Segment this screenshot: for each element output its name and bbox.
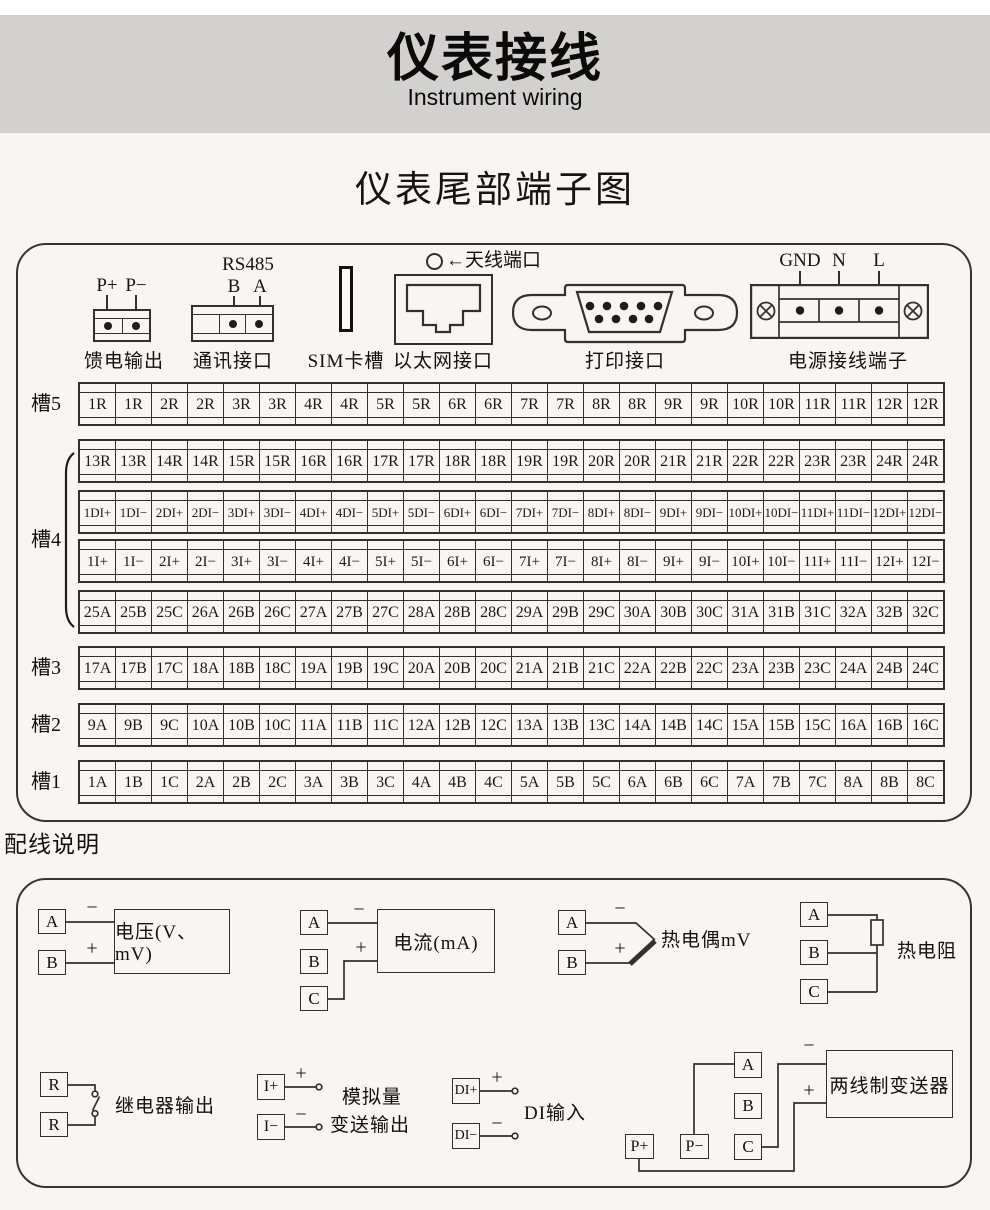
terminal-cell-label: 5I− — [411, 554, 432, 571]
terminal-cell-label: 6C — [700, 774, 719, 792]
terminal-cell-label: 1R — [124, 396, 143, 414]
terminal-cell: 6B — [655, 762, 691, 802]
terminal-cell: 15R — [223, 441, 259, 481]
terminal-cell-label: 23B — [768, 660, 795, 678]
terminal-cell-label: 12B — [444, 717, 471, 735]
terminal-cell-label: 10DI− — [764, 505, 798, 521]
terminal-cell: 7I+ — [511, 541, 547, 581]
terminal-cell: 1C — [151, 762, 187, 802]
thermocouple-plus-sign: + — [614, 938, 625, 961]
top-white-strip — [0, 0, 990, 15]
terminal-cell-label: 10R — [768, 396, 795, 414]
terminal-cell: 25B — [115, 592, 151, 632]
terminal-cell: 11B — [331, 705, 367, 745]
terminal-cell: 8B — [871, 762, 907, 802]
terminal-cell: 16B — [871, 705, 907, 745]
terminal-cell: 31A — [727, 592, 763, 632]
terminal-cell: 22A — [619, 648, 655, 688]
terminal-cell: 8DI+ — [583, 492, 619, 532]
terminal-cell: 10DI− — [763, 492, 799, 532]
terminal-cell-label: 3DI− — [264, 505, 292, 521]
terminal-cell: 5DI− — [403, 492, 439, 532]
terminal-cell-label: 24B — [876, 660, 903, 678]
terminal-cell-label: 20A — [408, 660, 436, 678]
terminal-cell-label: 6A — [628, 774, 648, 792]
terminal-cell: 1I+ — [80, 541, 115, 581]
terminal-cell: 29B — [547, 592, 583, 632]
terminal-cell-label: 10C — [264, 717, 291, 735]
rj45-jack-icon — [396, 276, 491, 343]
terminal-cell: 17R — [367, 441, 403, 481]
terminal-cell-label: 6DI+ — [444, 505, 472, 521]
terminal-cell-label: 1DI− — [120, 505, 148, 521]
terminal-cell-label: 10A — [192, 717, 220, 735]
di-terminal-plus: DI+ — [452, 1078, 480, 1104]
power-terminal-block — [750, 284, 929, 339]
terminal-cell: 11DI+ — [799, 492, 835, 532]
page-title: 仪表接线 — [0, 15, 990, 89]
terminal-cell: 2I+ — [151, 541, 187, 581]
terminal-cell: 9C — [151, 705, 187, 745]
feed-wire — [106, 295, 108, 310]
terminal-cell-label: 5DI− — [408, 505, 436, 521]
terminal-cell: 26C — [259, 592, 295, 632]
terminal-cell-label: 6R — [448, 396, 467, 414]
feed-terminal-block — [93, 309, 151, 342]
terminal-cell-label: 21B — [552, 660, 579, 678]
terminal-cell-label: 4I− — [339, 554, 360, 571]
terminal-cell: 16A — [835, 705, 871, 745]
terminal-cell: 1DI− — [115, 492, 151, 532]
terminal-cell: 26A — [187, 592, 223, 632]
terminal-cell: 3A — [295, 762, 331, 802]
screw-icon — [758, 303, 922, 320]
terminal-cell-label: 21C — [588, 660, 615, 678]
terminal-cell-label: 15C — [804, 717, 831, 735]
terminal-cell-label: 4B — [448, 774, 467, 792]
terminal-cell: 3B — [331, 762, 367, 802]
terminal-cell: 12DI− — [907, 492, 943, 532]
terminal-cell-label: 26A — [192, 604, 220, 622]
terminal-cell-label: 16B — [876, 717, 903, 735]
terminal-cell-label: 28B — [444, 604, 471, 622]
thermocouple-minus-sign: − — [614, 898, 625, 921]
terminal-cell-label: 8B — [880, 774, 899, 792]
terminal-cell: 32C — [907, 592, 943, 632]
terminal-cell-label: 2B — [232, 774, 251, 792]
terminal-cell: 11R — [835, 384, 871, 424]
terminal-cell: 6DI− — [475, 492, 511, 532]
terminal-cell-label: 27C — [372, 604, 399, 622]
voltage-plus-sign: + — [86, 938, 97, 961]
power-wire — [799, 271, 801, 284]
terminal-cell: 20R — [619, 441, 655, 481]
terminal-cell: 12R — [871, 384, 907, 424]
terminal-cell: 25A — [80, 592, 115, 632]
terminal-cell: 1B — [115, 762, 151, 802]
terminal-cell-label: 12DI− — [908, 505, 942, 521]
terminal-dot — [229, 320, 237, 328]
terminal-cell: 24R — [871, 441, 907, 481]
terminal-cell-label: 18C — [264, 660, 291, 678]
terminal-cell: 10I− — [763, 541, 799, 581]
wiring-section-title: 配线说明 — [4, 832, 100, 858]
terminal-cell: 28B — [439, 592, 475, 632]
terminal-cell-label: 1DI+ — [84, 505, 112, 521]
rtd-terminal-c: C — [800, 979, 828, 1004]
terminal-cell: 15R — [259, 441, 295, 481]
terminal-cell-label: 12C — [480, 717, 507, 735]
terminal-cell-label: 5R — [412, 396, 431, 414]
terminal-cell-label: 1R — [88, 396, 107, 414]
terminal-cell-label: 4A — [412, 774, 432, 792]
terminal-cell: 16R — [295, 441, 331, 481]
terminal-cell: 1I− — [115, 541, 151, 581]
feed-label: 馈电输出 — [84, 350, 164, 373]
analog-terminal-iplus: I+ — [257, 1074, 285, 1100]
terminal-cell: 9I− — [691, 541, 727, 581]
terminal-cell: 5B — [547, 762, 583, 802]
terminal-cell: 27B — [331, 592, 367, 632]
terminal-cell: 30A — [619, 592, 655, 632]
terminal-cell-label: 3DI+ — [228, 505, 256, 521]
terminal-cell-label: 23C — [804, 660, 831, 678]
terminal-cell: 6A — [619, 762, 655, 802]
terminal-cell-label: 19B — [336, 660, 363, 678]
terminal-cell: 21A — [511, 648, 547, 688]
terminal-cell-label: 9DI− — [696, 505, 724, 521]
current-terminal-c: C — [300, 986, 328, 1011]
terminal-cell-label: 7R — [556, 396, 575, 414]
terminal-cell-label: 23A — [732, 660, 760, 678]
terminal-cell-label: 4DI− — [336, 505, 364, 521]
page-subtitle: Instrument wiring — [0, 85, 990, 109]
terminal-cell: 21C — [583, 648, 619, 688]
terminal-cell: 30C — [691, 592, 727, 632]
transmitter-pin-pminus: P− — [680, 1134, 709, 1159]
terminal-cell: 17B — [115, 648, 151, 688]
sim-slot-icon — [339, 266, 353, 332]
terminal-cell: 18C — [259, 648, 295, 688]
current-device-box: 电流(mA) — [377, 909, 495, 973]
analog-terminal-iminus: I− — [257, 1114, 285, 1140]
terminal-cell-label: 32B — [876, 604, 903, 622]
terminal-cell-label: 3R — [268, 396, 287, 414]
terminal-cell-label: 11DI+ — [801, 505, 835, 521]
terminal-cell: 3R — [259, 384, 295, 424]
terminal-cell-label: 10I− — [767, 554, 795, 571]
terminal-cell-label: 21R — [660, 453, 687, 471]
terminal-cell: 18B — [223, 648, 259, 688]
terminal-cell-label: 19R — [552, 453, 579, 471]
slot1-label: 槽1 — [24, 770, 68, 794]
terminal-dot — [132, 322, 140, 330]
terminal-cell: 3DI− — [259, 492, 295, 532]
terminal-cell: 8R — [619, 384, 655, 424]
terminal-cell-label: 20R — [588, 453, 615, 471]
terminal-cell: 23R — [835, 441, 871, 481]
current-terminal-b: B — [300, 949, 328, 974]
terminal-cell: 4C — [475, 762, 511, 802]
terminal-cell: 6DI+ — [439, 492, 475, 532]
terminal-cell: 9I+ — [655, 541, 691, 581]
di-terminal-minus: DI− — [452, 1123, 480, 1149]
terminal-cell: 14R — [151, 441, 187, 481]
terminal-cell: 27C — [367, 592, 403, 632]
terminal-cell-label: 25A — [84, 604, 112, 622]
terminal-cell: 4DI− — [331, 492, 367, 532]
power-pin-n-label: N — [832, 250, 846, 272]
terminal-cell-label: 24A — [840, 660, 868, 678]
terminal-cell-label: 26B — [228, 604, 255, 622]
terminal-cell-label: 21R — [696, 453, 723, 471]
terminal-cell-label: 5DI+ — [372, 505, 400, 521]
current-terminal-a: A — [300, 910, 328, 935]
terminal-cell-label: 9A — [88, 717, 108, 735]
analog-label-line1: 模拟量 — [342, 1086, 402, 1109]
terminal-strip: 1DI+1DI−2DI+2DI−3DI+3DI−4DI+4DI−5DI+5DI−… — [78, 490, 945, 534]
terminal-cell-label: 24C — [912, 660, 939, 678]
terminal-cell: 4DI+ — [295, 492, 331, 532]
terminal-cell: 11A — [295, 705, 331, 745]
terminal-cell: 3C — [367, 762, 403, 802]
terminal-cell: 21R — [655, 441, 691, 481]
terminal-cell-label: 8A — [844, 774, 864, 792]
relay-terminal-r2: R — [40, 1112, 68, 1137]
terminal-cell: 29A — [511, 592, 547, 632]
power-label: 电源接线端子 — [788, 350, 908, 373]
voltage-terminal-a: A — [38, 909, 66, 934]
terminal-cell: 26B — [223, 592, 259, 632]
terminal-cell: 9R — [655, 384, 691, 424]
terminal-cell-label: 8DI− — [624, 505, 652, 521]
terminal-cell-label: 22A — [624, 660, 652, 678]
terminal-cell-label: 9DI+ — [660, 505, 688, 521]
terminal-cell: 28C — [475, 592, 511, 632]
terminal-cell: 18R — [439, 441, 475, 481]
terminal-cell-label: 13C — [588, 717, 615, 735]
terminal-cell-label: 22R — [768, 453, 795, 471]
terminal-cell: 5A — [511, 762, 547, 802]
terminal-cell: 14C — [691, 705, 727, 745]
terminal-cell: 18A — [187, 648, 223, 688]
terminal-cell-label: 1I− — [123, 554, 144, 571]
terminal-cell: 8I− — [619, 541, 655, 581]
terminal-cell: 12I+ — [871, 541, 907, 581]
terminal-cell: 18R — [475, 441, 511, 481]
terminal-cell: 20A — [403, 648, 439, 688]
terminal-cell: 8C — [907, 762, 943, 802]
rtd-terminal-a: A — [800, 902, 828, 927]
terminal-cell-label: 6R — [484, 396, 503, 414]
di-label: DI输入 — [524, 1102, 586, 1125]
terminal-cell: 11C — [367, 705, 403, 745]
power-wire — [838, 271, 840, 284]
terminal-cell: 9A — [80, 705, 115, 745]
terminal-cell: 5DI+ — [367, 492, 403, 532]
terminal-cell: 29C — [583, 592, 619, 632]
terminal-cell: 14R — [187, 441, 223, 481]
relay-label: 继电器输出 — [115, 1095, 215, 1118]
terminal-cell-label: 8I− — [627, 554, 648, 571]
transmitter-terminal-b: B — [734, 1093, 762, 1119]
terminal-cell-label: 20B — [444, 660, 471, 678]
terminal-cell: 2DI+ — [151, 492, 187, 532]
terminal-cell: 15C — [799, 705, 835, 745]
terminal-cell-label: 12R — [912, 396, 939, 414]
terminal-cell-label: 3A — [304, 774, 324, 792]
terminal-cell: 22C — [691, 648, 727, 688]
terminal-cell-label: 19R — [516, 453, 543, 471]
terminal-cell-label: 16C — [912, 717, 939, 735]
terminal-cell: 23C — [799, 648, 835, 688]
feed-pin-plus-label: P+ — [96, 275, 117, 297]
terminal-cell-label: 14R — [192, 453, 219, 471]
terminal-cell-label: 1B — [124, 774, 143, 792]
terminal-cell-label: 25B — [120, 604, 147, 622]
terminal-cell-label: 18R — [444, 453, 471, 471]
terminal-cell: 19R — [511, 441, 547, 481]
terminal-cell: 15B — [763, 705, 799, 745]
terminal-cell-label: 8R — [628, 396, 647, 414]
terminal-cell-label: 24R — [912, 453, 939, 471]
terminal-cell-label: 27A — [300, 604, 328, 622]
terminal-cell: 25C — [151, 592, 187, 632]
terminal-cell-label: 17C — [156, 660, 183, 678]
slot3-label: 槽3 — [24, 656, 68, 680]
terminal-cell: 11DI− — [835, 492, 871, 532]
current-plus-sign: + — [355, 937, 366, 960]
terminal-cell: 6I− — [475, 541, 511, 581]
terminal-cell-label: 2A — [196, 774, 216, 792]
terminal-cell-label: 15A — [732, 717, 760, 735]
terminal-cell-label: 6DI− — [480, 505, 508, 521]
terminal-cell: 16R — [331, 441, 367, 481]
terminal-cell-label: 11R — [840, 396, 866, 414]
terminal-cell-label: 4C — [484, 774, 503, 792]
terminal-cell: 1R — [80, 384, 115, 424]
terminal-cell: 3DI+ — [223, 492, 259, 532]
terminal-cell-label: 20C — [480, 660, 507, 678]
terminal-strip: 25A25B25C26A26B26C27A27B27C28A28B28C29A2… — [78, 590, 945, 634]
terminal-cell-label: 11R — [804, 396, 830, 414]
comm-terminal-block — [191, 305, 274, 342]
terminal-cell-label: 31C — [804, 604, 831, 622]
terminal-cell-label: 3R — [232, 396, 251, 414]
terminal-cell: 2DI− — [187, 492, 223, 532]
terminal-cell: 1A — [80, 762, 115, 802]
terminal-cell-label: 7C — [808, 774, 827, 792]
terminal-strip: 9A9B9C10A10B10C11A11B11C12A12B12C13A13B1… — [78, 703, 945, 747]
terminal-cell: 23B — [763, 648, 799, 688]
terminal-cell: 27A — [295, 592, 331, 632]
terminal-cell: 19R — [547, 441, 583, 481]
terminal-cell-label: 13R — [120, 453, 147, 471]
terminal-cell-label: 23R — [804, 453, 831, 471]
terminal-cell: 4B — [439, 762, 475, 802]
terminal-cell-label: 14B — [660, 717, 687, 735]
terminal-cell: 10DI+ — [727, 492, 763, 532]
terminal-cell-label: 13B — [552, 717, 579, 735]
terminal-cell-label: 31A — [732, 604, 760, 622]
terminal-cell: 24B — [871, 648, 907, 688]
terminal-cell-label: 29B — [552, 604, 579, 622]
terminal-cell-label: 11I+ — [804, 554, 832, 571]
terminal-cell-label: 16R — [336, 453, 363, 471]
terminal-cell: 8I+ — [583, 541, 619, 581]
terminal-cell-label: 8DI+ — [588, 505, 616, 521]
terminal-cell: 2A — [187, 762, 223, 802]
terminal-cell-label: 1A — [88, 774, 108, 792]
terminal-cell: 7B — [763, 762, 799, 802]
terminal-cell-label: 10R — [732, 396, 759, 414]
terminal-cell: 23R — [799, 441, 835, 481]
terminal-cell: 22B — [655, 648, 691, 688]
analog-label-line2: 变送输出 — [330, 1114, 410, 1137]
terminal-panel: P+ P− 馈电输出 RS485 B A 通讯接口 — [16, 243, 972, 822]
terminal-cell: 31C — [799, 592, 835, 632]
terminal-cell-label: 30C — [696, 604, 723, 622]
rtd-label: 热电阻 — [897, 940, 957, 963]
terminal-cell-label: 8R — [592, 396, 611, 414]
transmitter-pin-pplus: P+ — [625, 1134, 654, 1159]
terminal-cell-label: 7R — [520, 396, 539, 414]
terminal-cell: 12B — [439, 705, 475, 745]
terminal-cell-label: 9B — [124, 717, 143, 735]
terminal-cell-label: 7DI− — [552, 505, 580, 521]
terminal-cell: 13C — [583, 705, 619, 745]
terminal-cell-label: 15B — [768, 717, 795, 735]
terminal-cell: 19A — [295, 648, 331, 688]
terminal-cell: 6R — [475, 384, 511, 424]
terminal-cell-label: 22C — [696, 660, 723, 678]
terminal-cell: 20R — [583, 441, 619, 481]
terminal-diagram-title: 仪表尾部端子图 — [0, 168, 990, 212]
terminal-cell-label: 4I+ — [303, 554, 324, 571]
header-band: 仪表接线 Instrument wiring — [0, 15, 990, 133]
terminal-cell: 22R — [763, 441, 799, 481]
terminal-cell: 7R — [547, 384, 583, 424]
terminal-cell-label: 5A — [520, 774, 540, 792]
terminal-cell: 11R — [799, 384, 835, 424]
terminal-cell: 30B — [655, 592, 691, 632]
terminal-cell-label: 5C — [592, 774, 611, 792]
terminal-cell-label: 2I+ — [159, 554, 180, 571]
terminal-cell: 19C — [367, 648, 403, 688]
terminal-cell: 12R — [907, 384, 943, 424]
terminal-cell: 7I− — [547, 541, 583, 581]
terminal-cell-label: 18A — [192, 660, 220, 678]
terminal-cell: 4R — [331, 384, 367, 424]
relay-terminal-r1: R — [40, 1072, 68, 1097]
terminal-cell-label: 22B — [660, 660, 687, 678]
ethernet-port — [394, 274, 493, 345]
power-pin-l-label: L — [873, 250, 885, 272]
terminal-cell: 8DI− — [619, 492, 655, 532]
slot4-label: 槽4 — [24, 528, 68, 552]
comm-label: 通讯接口 — [193, 350, 273, 373]
terminal-cell: 9DI+ — [655, 492, 691, 532]
terminal-cell: 10R — [727, 384, 763, 424]
terminal-cell: 13R — [115, 441, 151, 481]
di-plus-sign: + — [491, 1067, 502, 1090]
terminal-cell-label: 12I+ — [875, 554, 903, 571]
terminal-cell: 1DI+ — [80, 492, 115, 532]
transmitter-terminal-c: C — [734, 1134, 762, 1160]
terminal-cell-label: 2C — [268, 774, 287, 792]
terminal-cell-label: 22R — [732, 453, 759, 471]
transmitter-minus-sign: − — [803, 1035, 814, 1058]
